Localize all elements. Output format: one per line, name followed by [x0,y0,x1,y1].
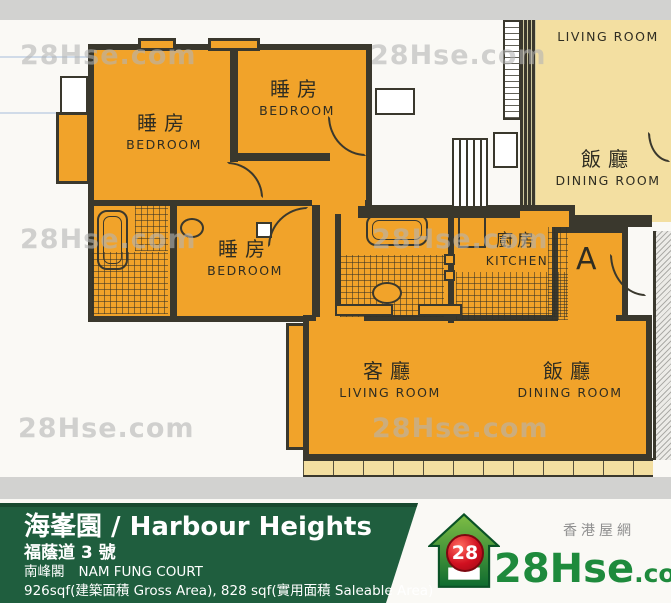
staircase [452,138,488,208]
living-room-zh: 客廳 [330,360,450,382]
left-orange-bay [56,112,90,184]
bedroom2-en: BEDROOM [237,104,357,118]
kitchen-en: KITCHEN [452,255,582,268]
lift-box [493,132,518,168]
watermark: 28Hse.com [370,40,547,71]
floorplan-screenshot: LIVING ROOM 飯廳 DINING ROOM [0,0,671,603]
block-name-zh: 南峰閣 [24,564,65,580]
lower-unit-strip [303,458,653,477]
logo-brand-main: 28Hse [494,546,634,592]
logo-tagline: 香港屋網 [563,520,635,540]
bedroom3-zh: 睡房 [185,238,305,260]
watermark: 28Hse.com [372,413,549,444]
window-tab [208,38,260,51]
living-room-label: 客廳 LIVING ROOM [330,360,450,400]
bedroom2-label: 睡房 BEDROOM [237,78,357,118]
bed3-corridor-wall [312,205,320,317]
top-gray-bar [0,0,671,20]
bedroom1-label: 睡房 BEDROOM [104,112,224,152]
right-corridor-strip [653,231,671,460]
bedroom1-zh: 睡房 [104,112,224,134]
neighbor-dining-room-zh: 飯廳 [548,148,668,170]
bottom-gray-bar [0,477,671,499]
watermark: 28Hse.com [372,224,549,255]
neighbor-living-room-label: LIVING ROOM [548,26,668,44]
watermark: 28Hse.com [20,40,197,71]
dining-room-zh: 飯廳 [510,360,630,382]
watermark: 28Hse.com [18,413,195,444]
lobby-bottom-wall [358,206,520,218]
kitchen-fixture [444,270,455,281]
living-room-en: LIVING ROOM [330,386,450,400]
lift-box [375,88,415,115]
cabinet [335,304,393,316]
dining-room-label: 飯廳 DINING ROOM [510,360,630,400]
living-left-bay [286,323,306,450]
unit-a-label: A [576,242,597,277]
watermark: 28Hse.com [20,224,197,255]
neighbor-unit-area [536,20,671,222]
neighbor-dining-room-label: 飯廳 DINING ROOM [548,148,668,188]
neighbor-dining-room-en: DINING ROOM [548,174,668,188]
logo-28-badge: 28 [446,534,484,572]
left-window-bay [60,76,88,114]
block-name-en: NAM FUNG COURT [79,564,203,580]
bedroom1-en: BEDROOM [104,138,224,152]
bedroom3-label: 睡房 BEDROOM [185,238,305,278]
logo-brand-suffix: .com [634,559,671,588]
dining-room-en: DINING ROOM [510,386,630,400]
block-name: 南峰閣NAM FUNG COURT [24,560,203,580]
bathroom1-floor [92,252,168,314]
toilet-2 [372,282,402,304]
logo-brand-text: 28Hse.com [494,546,671,592]
bed2-corridor-wall [230,153,330,161]
bedroom3-en: BEDROOM [185,264,305,278]
bath1-bed3-wall [170,205,177,317]
area-info: 926sqf(建築面積 Gross Area), 828 sqf(實用面積 Sa… [24,579,433,599]
bedroom2-zh: 睡房 [237,78,357,100]
cabinet [418,304,462,316]
neighbor-living-room-en: LIVING ROOM [548,30,668,44]
